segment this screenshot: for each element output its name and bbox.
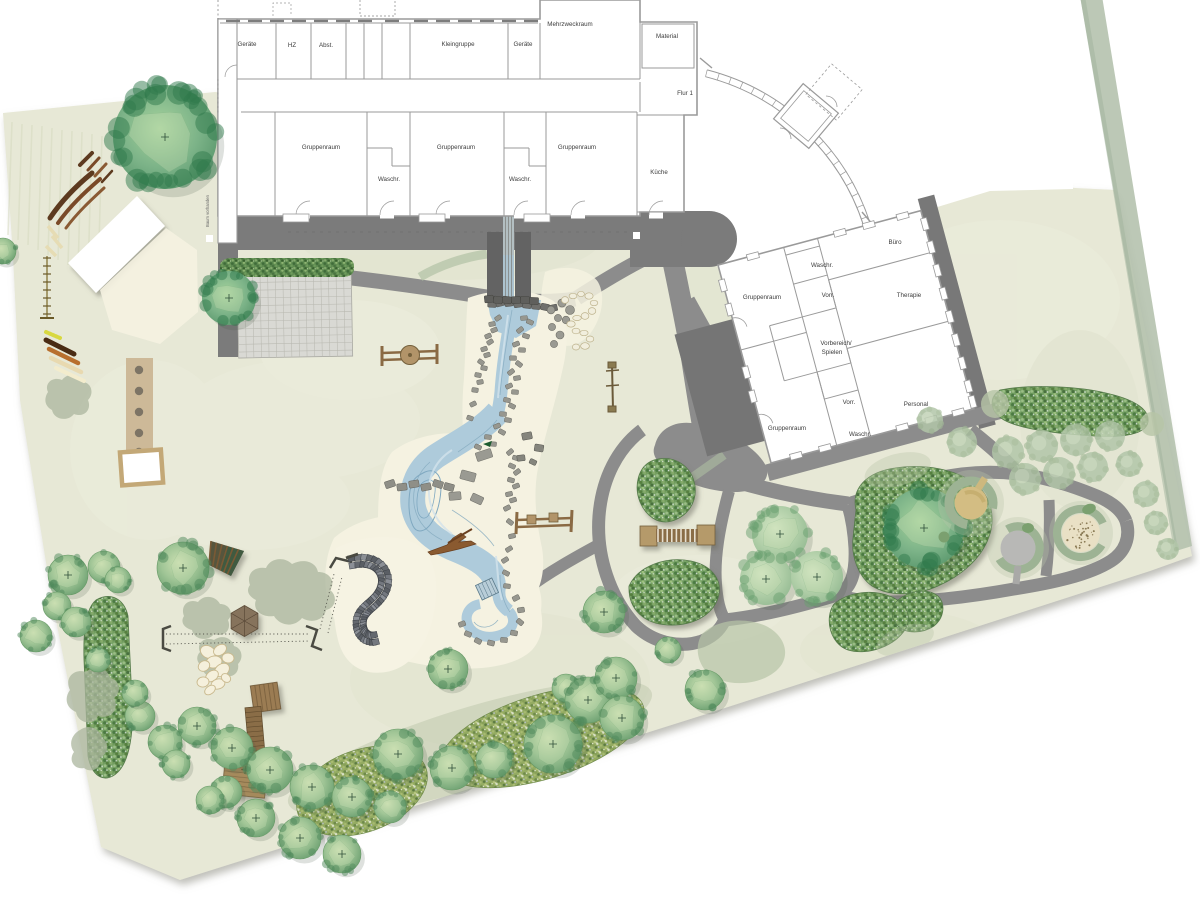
svg-text:Material: Material xyxy=(656,33,678,40)
svg-text:Spielen: Spielen xyxy=(822,349,843,356)
svg-text:Abst.: Abst. xyxy=(319,42,333,49)
svg-text:Geräte: Geräte xyxy=(514,41,533,48)
svg-text:Gruppenraum: Gruppenraum xyxy=(743,294,781,301)
svg-text:Gruppenraum: Gruppenraum xyxy=(437,144,475,151)
svg-text:Vorr.: Vorr. xyxy=(843,399,856,406)
svg-text:Waschr.: Waschr. xyxy=(811,262,833,269)
svg-text:Waschr.: Waschr. xyxy=(378,176,400,183)
svg-text:Vorr.: Vorr. xyxy=(822,292,835,299)
svg-text:Geräte: Geräte xyxy=(238,41,257,48)
svg-text:Kleingruppe: Kleingruppe xyxy=(441,41,475,48)
svg-text:Gruppenraum: Gruppenraum xyxy=(302,144,340,151)
svg-text:Mehrzweckraum: Mehrzweckraum xyxy=(547,21,592,28)
svg-text:Gruppenraum: Gruppenraum xyxy=(768,425,806,432)
svg-text:Therapie: Therapie xyxy=(897,292,922,299)
svg-text:Vorbereich/: Vorbereich/ xyxy=(820,340,852,347)
svg-text:Küche: Küche xyxy=(650,169,668,176)
svg-text:Flur 1: Flur 1 xyxy=(677,90,693,97)
svg-text:Gruppenraum: Gruppenraum xyxy=(558,144,596,151)
svg-text:Büro: Büro xyxy=(888,239,902,246)
svg-text:Waschr.: Waschr. xyxy=(849,431,871,438)
svg-text:Personal: Personal xyxy=(904,401,928,408)
svg-text:Waschr.: Waschr. xyxy=(509,176,531,183)
svg-text:Baum vorhanden: Baum vorhanden xyxy=(205,194,210,227)
svg-text:HZ: HZ xyxy=(288,42,296,49)
